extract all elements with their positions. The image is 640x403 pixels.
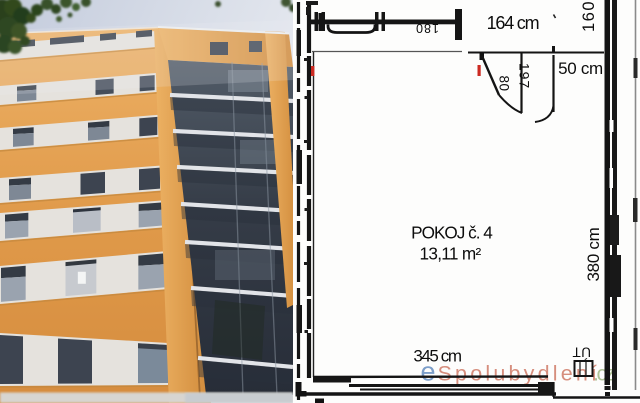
svg-text:ÚT: ÚT: [572, 345, 591, 360]
svg-text:POKOJ č. 4: POKOJ č. 4: [411, 223, 493, 243]
svg-text:380 cm: 380 cm: [584, 227, 603, 281]
svg-text:80: 80: [497, 75, 512, 91]
svg-text:197: 197: [517, 63, 533, 89]
svg-text:Spolubydlení: Spolubydlení: [438, 362, 601, 386]
svg-text:345 cm: 345 cm: [413, 347, 462, 366]
svg-text:50 cm: 50 cm: [558, 59, 603, 78]
svg-text:180: 180: [415, 21, 439, 35]
svg-text:160: 160: [580, 0, 598, 32]
svg-text:164 cm: 164 cm: [487, 13, 539, 33]
svg-text:.cz: .cz: [593, 362, 615, 386]
svg-text:13,11 m²: 13,11 m²: [420, 244, 482, 264]
